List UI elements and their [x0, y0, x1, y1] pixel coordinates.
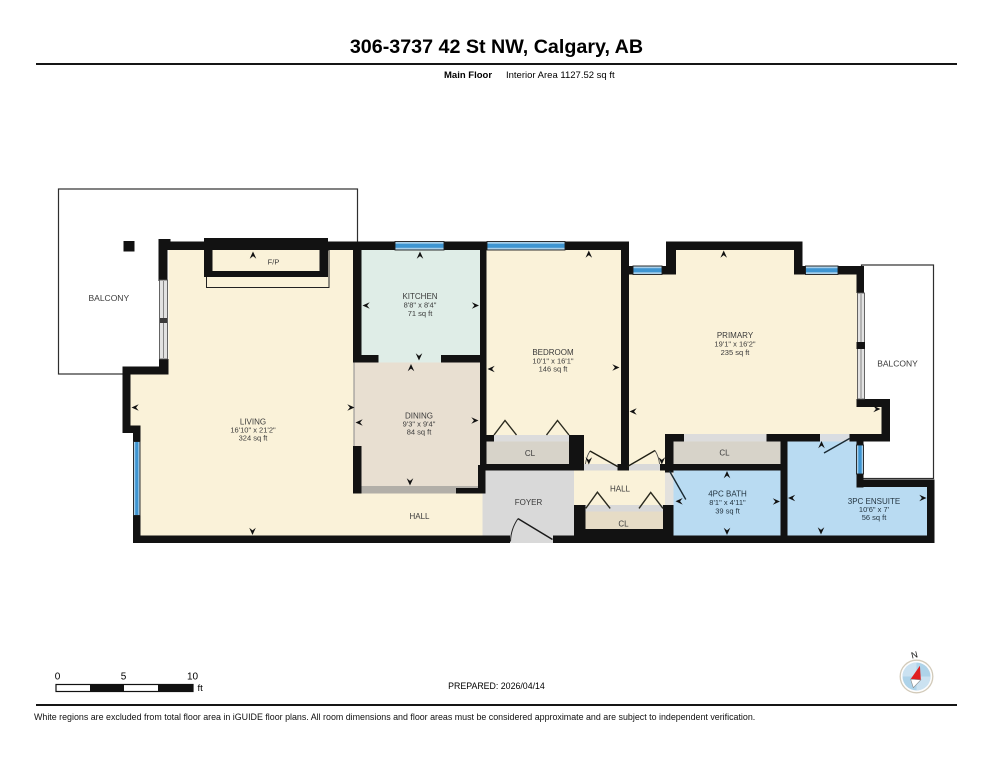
svg-text:56 sq ft: 56 sq ft	[862, 513, 888, 522]
svg-text:BALCONY: BALCONY	[88, 293, 129, 303]
svg-text:F/P: F/P	[268, 258, 280, 267]
svg-text:84 sq ft: 84 sq ft	[407, 428, 433, 437]
svg-text:CL: CL	[719, 449, 730, 458]
svg-text:235 sq ft: 235 sq ft	[721, 348, 751, 357]
svg-text:CL: CL	[618, 520, 629, 529]
svg-text:HALL: HALL	[409, 512, 430, 521]
svg-text:CL: CL	[525, 449, 536, 458]
svg-text:HALL: HALL	[610, 485, 631, 494]
svg-text:146 sq ft: 146 sq ft	[539, 365, 569, 374]
svg-text:BALCONY: BALCONY	[877, 359, 918, 369]
svg-text:N: N	[910, 649, 919, 660]
svg-text:39 sq ft: 39 sq ft	[715, 507, 741, 516]
svg-text:FOYER: FOYER	[515, 498, 543, 507]
svg-text:71 sq ft: 71 sq ft	[408, 309, 434, 318]
svg-text:324 sq ft: 324 sq ft	[239, 434, 269, 443]
